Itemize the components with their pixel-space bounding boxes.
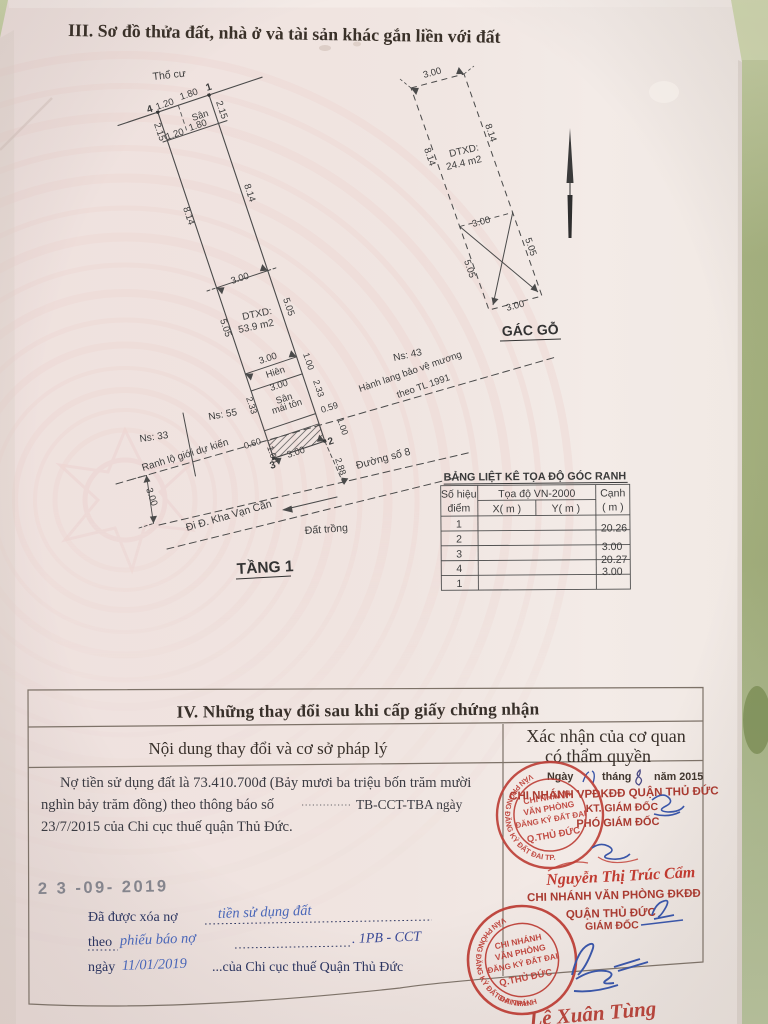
svg-text:tháng: tháng xyxy=(602,771,631,783)
svg-text:BẢNG LIỆT KÊ TỌA ĐỘ GÓC RANH: BẢNG LIỆT KÊ TỌA ĐỘ GÓC RANH xyxy=(444,469,627,483)
svg-text:TẦNG 1: TẦNG 1 xyxy=(236,558,294,578)
svg-text:2 3 -09- 2019: 2 3 -09- 2019 xyxy=(38,877,169,898)
svg-text:23/7/2015 của Chi cục thuế quậ: 23/7/2015 của Chi cục thuế quận Thủ Đức. xyxy=(41,819,293,835)
svg-text:phiếu báo nợ: phiếu báo nợ xyxy=(119,930,198,949)
svg-text:điểm: điểm xyxy=(447,502,470,514)
svg-text:GÁC GỖ: GÁC GỖ xyxy=(502,320,559,339)
svg-text:. 1PB - CCT: . 1PB - CCT xyxy=(352,930,423,947)
svg-text:4: 4 xyxy=(456,563,462,575)
svg-text:Y( m ): Y( m ) xyxy=(552,503,581,515)
svg-text:20.27: 20.27 xyxy=(601,554,628,566)
svg-text:1: 1 xyxy=(456,519,462,531)
svg-text:3.00: 3.00 xyxy=(602,566,623,578)
svg-text:Số hiệu: Số hiệu xyxy=(441,488,477,500)
svg-text:11/01/2019: 11/01/2019 xyxy=(122,956,188,974)
svg-text:( m ): ( m ) xyxy=(602,501,624,513)
svg-text:tiền sử dụng đất: tiền sử dụng đất xyxy=(218,903,313,922)
svg-text:nghìn bảy trăm đồng) theo thôn: nghìn bảy trăm đồng) theo thông báo số xyxy=(41,797,275,813)
svg-text:Xác nhận của cơ quan: Xác nhận của cơ quan xyxy=(526,726,685,746)
svg-text:Đã được xóa nợ: Đã được xóa nợ xyxy=(88,910,178,925)
svg-text:Tọa độ VN-2000: Tọa độ VN-2000 xyxy=(498,488,575,501)
svg-text:GIÁM ĐỐC: GIÁM ĐỐC xyxy=(585,917,639,932)
svg-text:X( m ): X( m ) xyxy=(493,503,522,515)
svg-text:năm 2015: năm 2015 xyxy=(654,771,703,783)
svg-text:...của Chi cục thuế Quận Thủ Đ: ...của Chi cục thuế Quận Thủ Đức xyxy=(212,960,403,975)
svg-text:Nội dung thay đổi và cơ sở phá: Nội dung thay đổi và cơ sở pháp lý xyxy=(149,739,388,758)
svg-text:3.00: 3.00 xyxy=(602,541,623,553)
svg-text:Cạnh: Cạnh xyxy=(600,487,625,499)
svg-text:QUẬN THỦ ĐỨC: QUẬN THỦ ĐỨC xyxy=(566,906,656,921)
svg-text:3: 3 xyxy=(456,549,462,561)
svg-text:IV. Những thay đổi sau khi cấp: IV. Những thay đổi sau khi cấp giấy chứn… xyxy=(176,699,539,721)
svg-text:ngày: ngày xyxy=(88,960,115,975)
svg-text:theo: theo xyxy=(88,935,112,950)
svg-text:1: 1 xyxy=(456,578,462,590)
svg-text:TB-CCT-TBA ngày: TB-CCT-TBA ngày xyxy=(356,797,463,812)
svg-text:2: 2 xyxy=(456,534,462,546)
svg-text:20.26: 20.26 xyxy=(601,522,628,534)
svg-text:Nợ tiền sử dụng đất là 73.410.: Nợ tiền sử dụng đất là 73.410.700đ (Bảy … xyxy=(60,775,471,791)
